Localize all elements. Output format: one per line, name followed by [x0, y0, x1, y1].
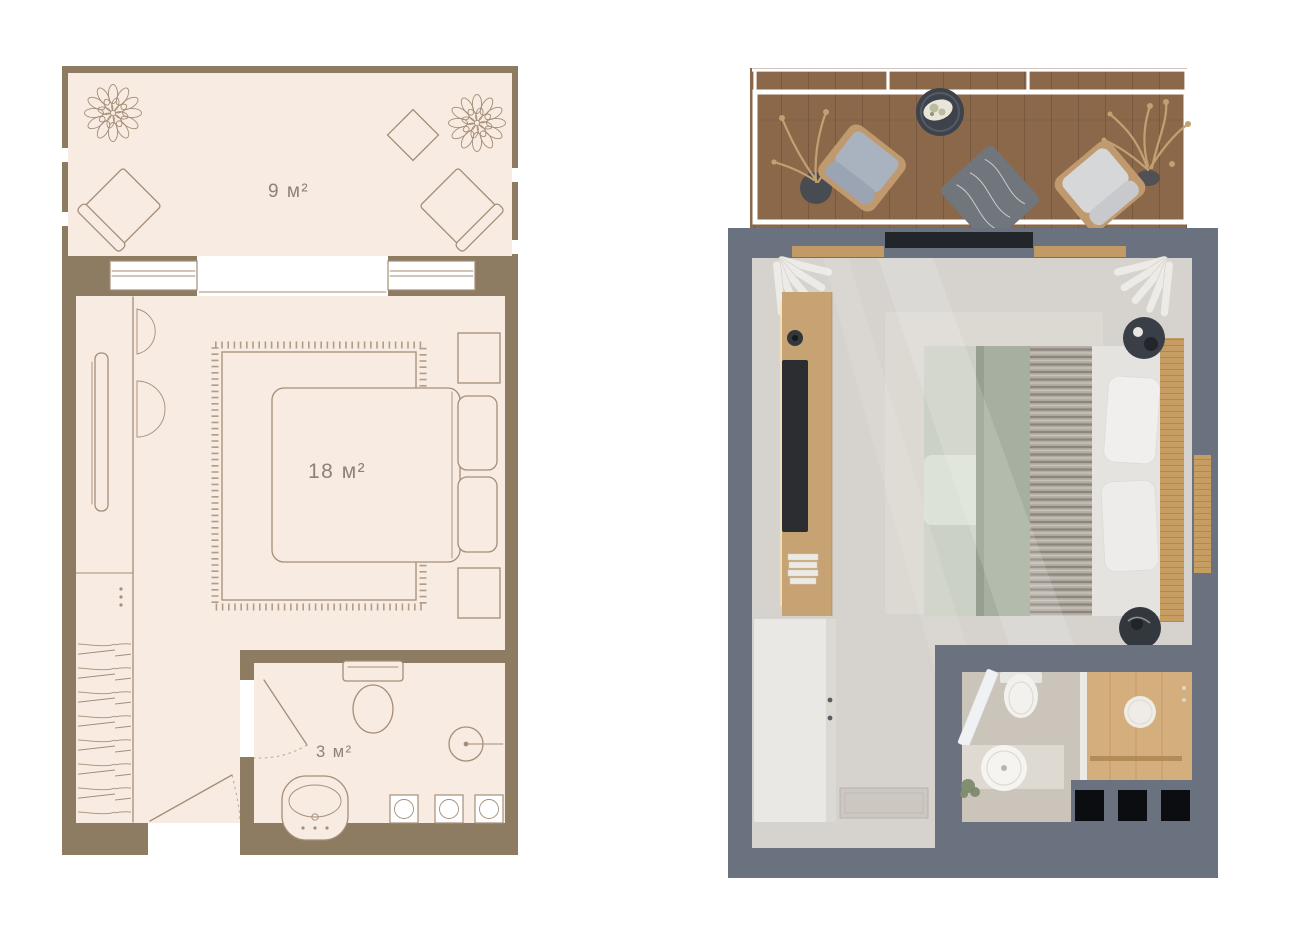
bedroom-area-label: 18 м² [308, 460, 366, 483]
washing-machine-icon [435, 795, 463, 823]
balcony-glass-door [885, 232, 1033, 248]
shower-stool [1124, 696, 1156, 728]
appliance-unit [1075, 790, 1104, 821]
wall-panel [1194, 455, 1211, 573]
wardrobe-handle [828, 716, 833, 721]
shower-drain [1090, 756, 1182, 761]
doormat [840, 788, 928, 818]
bathroom-door-opening [240, 680, 254, 757]
headboard [1160, 338, 1184, 622]
pillow [458, 396, 497, 470]
balcony-3d [750, 68, 1191, 247]
floor-plan-3d-render [728, 40, 1218, 878]
sink-icon [282, 776, 348, 840]
bathroom-3d [935, 645, 1218, 878]
wardrobe-3d [754, 618, 836, 822]
entry-opening [148, 823, 240, 855]
appliance-unit [1161, 790, 1190, 821]
shower-glass [1080, 672, 1087, 780]
wardrobe-hangers [78, 639, 131, 817]
appliance-unit [1118, 790, 1147, 821]
media-console [781, 292, 832, 616]
bathroom-area-label: 3 м² [316, 743, 353, 761]
balcony-door-opening [197, 256, 388, 296]
nightstand-3d [1119, 607, 1161, 649]
pillow [458, 477, 497, 552]
floorplan-comparison: 9 м² 18 м² 3 м² [0, 0, 1300, 947]
balcony-area-label: 9 м² [268, 181, 309, 202]
floor-plan-2d: 9 м² 18 м² 3 м² [62, 64, 518, 878]
pillow-3d [1101, 480, 1160, 573]
window-left [110, 261, 197, 290]
washing-machine-icon [390, 795, 418, 823]
nightstand-3d [1123, 317, 1165, 359]
shower-room [1080, 672, 1192, 790]
wardrobe-handle [828, 698, 833, 703]
washing-machine-icon [475, 795, 503, 823]
window-sill [792, 246, 884, 257]
window-right [388, 261, 475, 290]
pillow-3d [1103, 375, 1161, 464]
coffee-table-icon [916, 88, 964, 136]
nightstand [458, 333, 500, 383]
window-sill [1034, 246, 1126, 257]
tv-3d [782, 360, 808, 532]
tv-icon [92, 353, 108, 511]
nightstand [458, 568, 500, 618]
